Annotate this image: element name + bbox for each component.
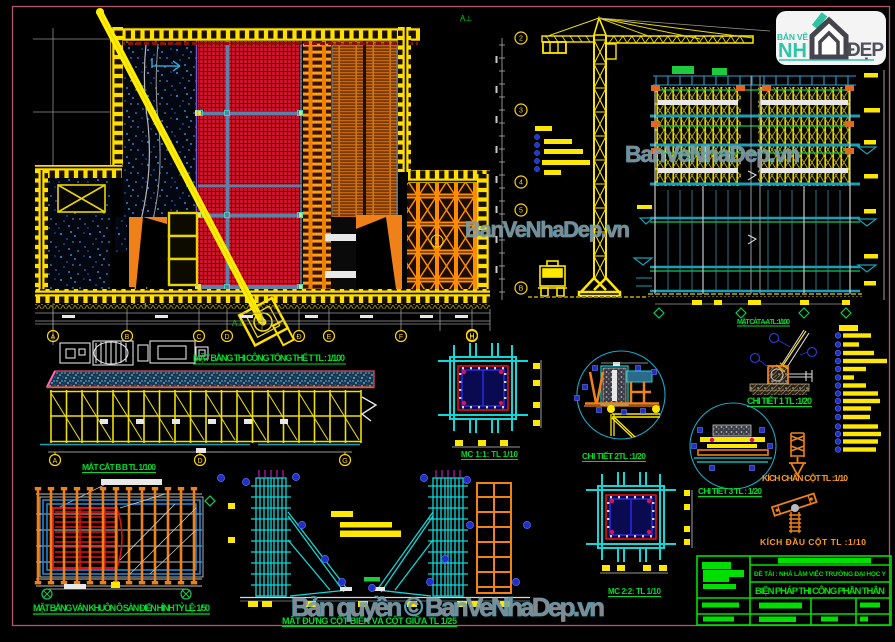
svg-text:C: C [196, 334, 201, 341]
svg-text:D: D [197, 458, 202, 465]
svg-text:Đ: Đ [296, 334, 301, 341]
svg-text:CHI TIẾT 3 TL : 1/20: CHI TIẾT 3 TL : 1/20 [698, 486, 762, 496]
svg-text:H: H [469, 333, 474, 340]
svg-text:BanVeNhaDep.vn: BanVeNhaDep.vn [625, 141, 800, 167]
svg-text:BanVeNhaDep.vn: BanVeNhaDep.vn [465, 217, 630, 242]
svg-text:B: B [125, 334, 130, 341]
svg-text:BIỆN PHÁP THI CÔNG PHẦN THÂN: BIỆN PHÁP THI CÔNG PHẦN THÂN [755, 585, 885, 597]
svg-text:D: D [224, 334, 229, 341]
svg-text:B: B [519, 286, 524, 293]
svg-text:A: A [53, 458, 58, 465]
svg-text:2: 2 [519, 36, 523, 43]
svg-text:KÍCH ĐẦU CỘT TL :1/10: KÍCH ĐẦU CỘT TL :1/10 [760, 536, 866, 547]
svg-text:MẶT BẰNG THI CÔNG TỔNG THỂ T T: MẶT BẰNG THI CÔNG TỔNG THỂ T TL : 1/100 [193, 352, 345, 363]
svg-text:F: F [399, 334, 403, 341]
svg-text:G: G [342, 458, 347, 465]
svg-text:NH: NH [778, 40, 807, 62]
svg-text:A⊥: A⊥ [460, 14, 472, 23]
svg-text:E: E [327, 334, 332, 341]
svg-text:4: 4 [519, 180, 523, 187]
svg-text:CHI TIẾT 1 TL :1/20: CHI TIẾT 1 TL :1/20 [747, 396, 812, 406]
svg-text:A: A [51, 334, 56, 341]
svg-text:1: 1 [435, 237, 440, 246]
svg-text:MẶT BẰNG VÁN KHUÔN Ô SÀN ĐIỂN: MẶT BẰNG VÁN KHUÔN Ô SÀN ĐIỂN HÌNH TỶ LỆ… [33, 602, 210, 613]
svg-text:5: 5 [519, 208, 523, 215]
svg-text:MẶT CẮT A-A TL :1/100: MẶT CẮT A-A TL :1/100 [737, 317, 790, 326]
svg-text:MẶT CẮT B B TL 1/100: MẶT CẮT B B TL 1/100 [82, 462, 156, 472]
svg-text:A⊥: A⊥ [232, 319, 244, 328]
svg-text:ĐẸP: ĐẸP [847, 40, 884, 61]
svg-text:MC 1:1: TL 1/10: MC 1:1: TL 1/10 [461, 450, 519, 459]
svg-text:3: 3 [519, 108, 523, 115]
svg-text:CHI TIẾT 2TL :1/20: CHI TIẾT 2TL :1/20 [582, 451, 646, 461]
svg-text:KÍCH CHÂN CỘT TL :1/10: KÍCH CHÂN CỘT TL :1/10 [762, 472, 848, 483]
svg-text:Bản quyền © BanVeNhaDep.vn: Bản quyền © BanVeNhaDep.vn [291, 592, 605, 622]
svg-text:MC 2:2: TL 1/10: MC 2:2: TL 1/10 [608, 587, 662, 596]
